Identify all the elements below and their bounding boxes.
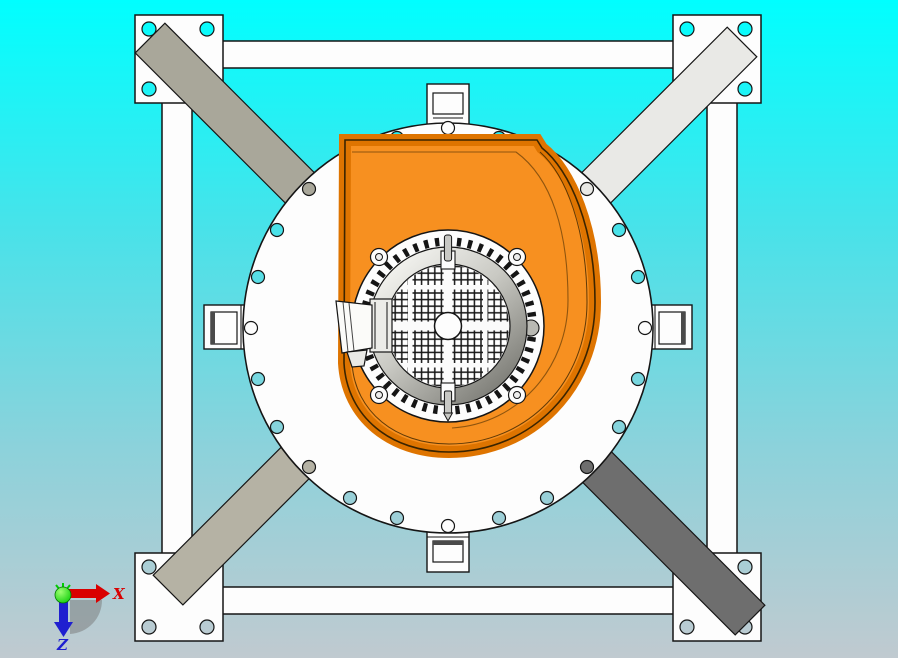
- bracket-collar: [370, 299, 392, 352]
- origin-sphere-icon[interactable]: [55, 583, 71, 603]
- cad-viewport[interactable]: X Z: [0, 0, 898, 658]
- frame-beam-bottom[interactable]: [150, 587, 748, 614]
- z-axis-label: Z: [56, 636, 69, 654]
- frame-beam-top[interactable]: [150, 41, 748, 68]
- frame-beam-right[interactable]: [707, 41, 737, 614]
- x-axis-label: X: [112, 585, 126, 603]
- frame-beam-left[interactable]: [162, 41, 192, 614]
- bracket-plate[interactable]: [336, 301, 372, 353]
- impeller-hub[interactable]: [435, 313, 462, 340]
